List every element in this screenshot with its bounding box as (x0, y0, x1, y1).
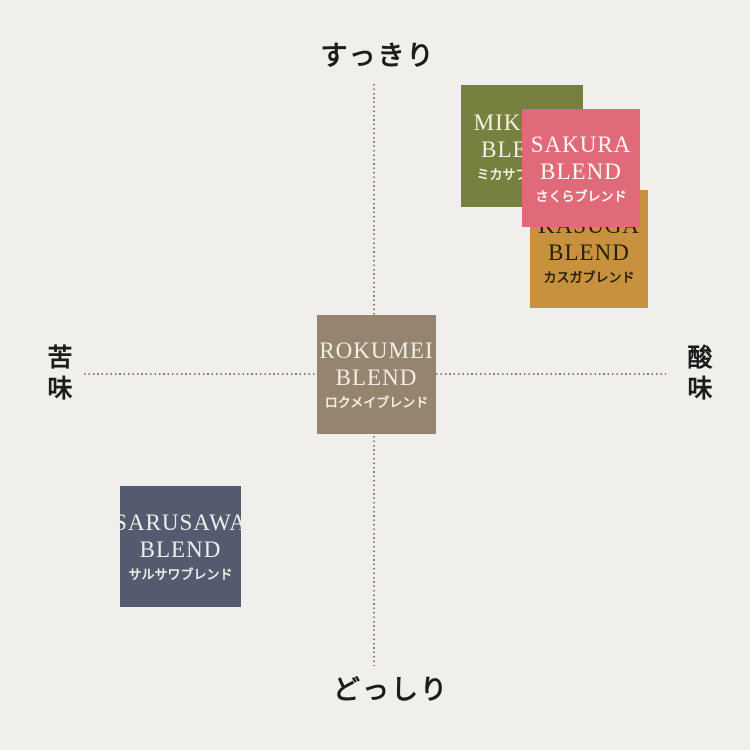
blend-word: BLEND (140, 536, 222, 563)
blend-word: BLEND (548, 239, 630, 266)
blend-name-en: SARUSAWA (114, 509, 247, 536)
blend-name-en: SAKURA (531, 131, 632, 158)
blend-block-sakura: SAKURA BLEND さくらブレンド (522, 109, 640, 227)
blend-name-ja: さくらブレンド (535, 190, 626, 206)
axis-label-light: すっきり (321, 34, 436, 73)
taste-map-chart: すっきり どっしり 苦味 酸味 MIKASA BLEND ミカサブレンド KAS… (0, 0, 750, 750)
blend-name-ja: カスガブレンド (543, 271, 634, 287)
blend-name-en: ROKUMEI (319, 337, 433, 364)
blend-name-ja: ロクメイブレンド (325, 396, 428, 412)
blend-block-sarusawa: SARUSAWA BLEND サルサワブレンド (120, 486, 241, 607)
blend-word: BLEND (540, 158, 622, 185)
axis-label-bitterness: 苦味 (40, 344, 76, 406)
blend-block-rokumei: ROKUMEI BLEND ロクメイブレンド (317, 315, 436, 434)
axis-label-heavy: どっしり (333, 668, 449, 707)
blend-word: BLEND (336, 364, 418, 391)
blend-name-ja: サルサワブレンド (128, 568, 232, 584)
axis-label-acidity: 酸味 (680, 344, 716, 406)
